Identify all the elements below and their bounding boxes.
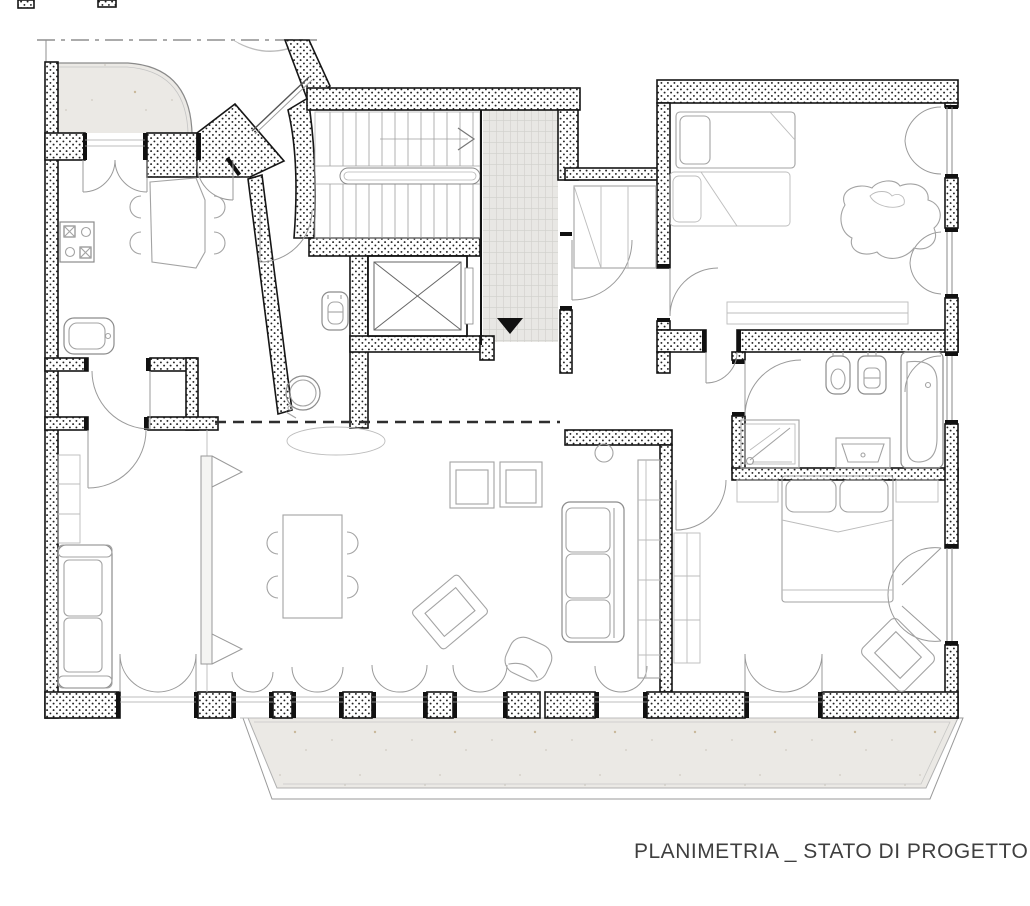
bedroom-north — [670, 112, 940, 324]
wc-room — [286, 292, 348, 418]
tub-chair — [500, 633, 556, 686]
lounge-chair-diagonal — [411, 574, 489, 651]
bathroom-sink — [836, 438, 890, 468]
wc-washbasin — [286, 376, 320, 418]
bedroom-wardrobe — [674, 533, 700, 663]
hall-closet — [574, 186, 656, 268]
elevator — [368, 256, 473, 336]
bathtub — [901, 352, 943, 468]
shower — [741, 420, 799, 468]
bedroom-south — [674, 476, 938, 694]
balcony-bottom — [240, 718, 963, 799]
pendant-lamp — [595, 444, 613, 462]
bidet — [826, 352, 850, 394]
cut-fragments-above-line — [18, 0, 116, 8]
floor-plan-drawing — [0, 0, 1030, 906]
kitchen-sink — [64, 318, 114, 354]
nightstand-right — [896, 480, 938, 502]
wc-toilet — [322, 292, 348, 330]
single-bed-2 — [670, 172, 790, 226]
drawing-caption: PLANIMETRIA _ STATO DI PROGETTO — [634, 840, 1024, 864]
nightstand-left — [737, 480, 778, 502]
kitchen — [60, 178, 225, 354]
sofa-left — [58, 545, 112, 688]
terrace-top-left — [58, 63, 192, 133]
hall-rug — [287, 427, 385, 455]
sofa-right — [562, 502, 624, 642]
stair-landing-tiled-floor — [483, 110, 558, 342]
double-bed — [782, 476, 893, 602]
sliding-partition — [201, 430, 242, 692]
toilet — [858, 352, 886, 394]
living-room — [58, 430, 660, 692]
stair-handrail — [340, 168, 480, 184]
radiator-bench — [58, 455, 80, 543]
chaise-longue — [841, 181, 940, 258]
elevator-doors — [465, 268, 473, 324]
bookshelf — [638, 460, 660, 678]
single-bed-1 — [676, 112, 795, 168]
kitchen-stove — [60, 222, 94, 262]
living-dining-table — [267, 515, 358, 618]
section-reference-line — [37, 40, 317, 62]
corner-armchair — [859, 616, 937, 694]
armchair-pair — [450, 462, 542, 508]
floor-plan-sheet: PLANIMETRIA _ STATO DI PROGETTO — [0, 0, 1030, 906]
